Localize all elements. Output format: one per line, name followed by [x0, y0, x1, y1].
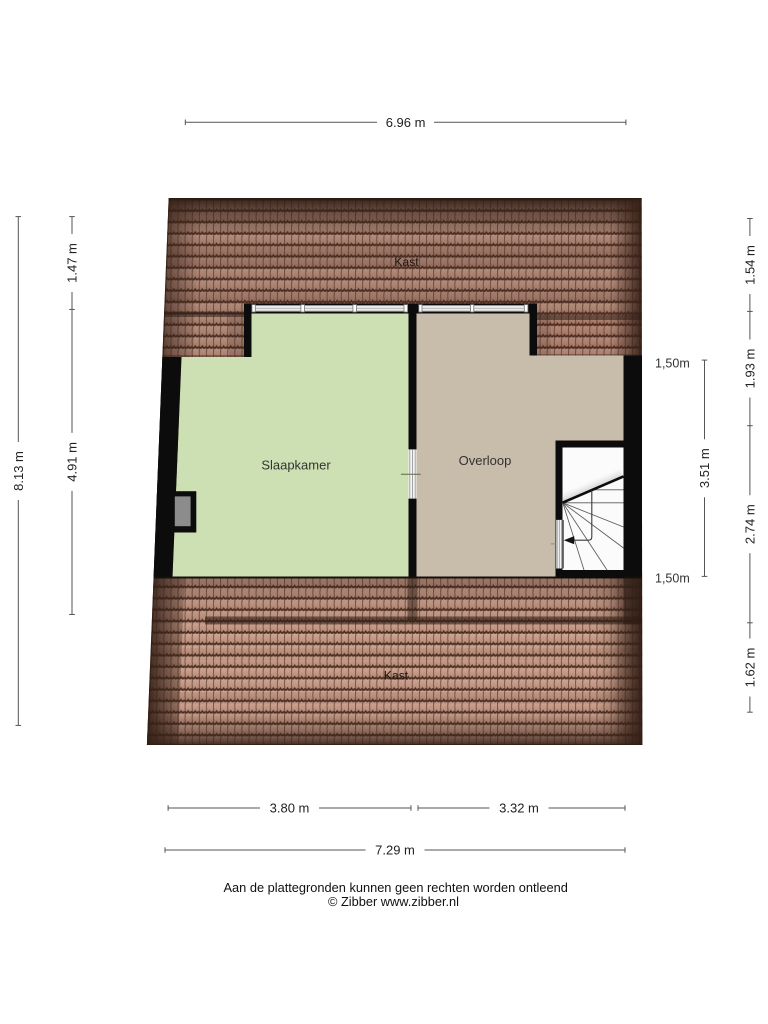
svg-text:3.51 m: 3.51 m — [697, 448, 712, 488]
svg-text:3.32 m: 3.32 m — [499, 801, 539, 816]
svg-text:1.93 m: 1.93 m — [742, 349, 757, 389]
svg-text:7.29 m: 7.29 m — [375, 843, 415, 858]
svg-text:1.62 m: 1.62 m — [742, 648, 757, 688]
svg-text:1.47 m: 1.47 m — [65, 243, 80, 283]
svg-text:© Zibber www.zibber.nl: © Zibber www.zibber.nl — [328, 894, 459, 909]
svg-text:Overloop: Overloop — [459, 453, 512, 468]
svg-text:2.74 m: 2.74 m — [742, 504, 757, 544]
svg-text:6.96 m: 6.96 m — [386, 115, 426, 130]
svg-text:4.91 m: 4.91 m — [65, 442, 80, 482]
svg-text:Aan de plattegronden kunnen ge: Aan de plattegronden kunnen geen rechten… — [224, 880, 568, 895]
svg-text:1,50m: 1,50m — [655, 357, 690, 371]
svg-text:3.80 m: 3.80 m — [270, 801, 310, 816]
svg-text:Kast: Kast — [384, 669, 409, 683]
svg-text:Kast: Kast — [394, 255, 419, 269]
svg-text:8.13 m: 8.13 m — [11, 451, 26, 491]
svg-text:1.54 m: 1.54 m — [742, 245, 757, 285]
svg-text:Slaapkamer: Slaapkamer — [261, 458, 331, 473]
svg-text:1,50m: 1,50m — [655, 572, 690, 586]
